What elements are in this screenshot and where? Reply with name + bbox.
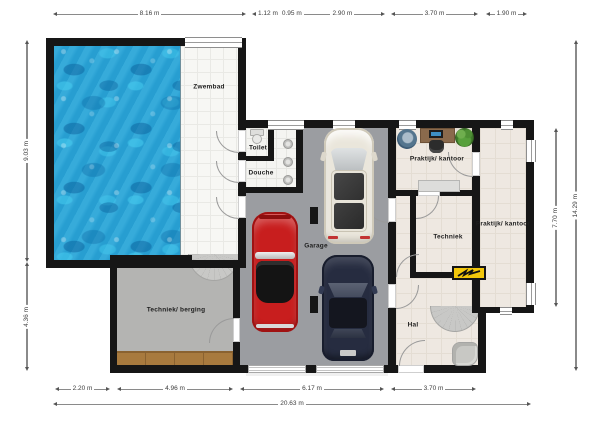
car-rear-window bbox=[330, 329, 366, 338]
shower-head-icon[interactable] bbox=[283, 139, 293, 149]
pillar bbox=[310, 207, 318, 224]
door[interactable] bbox=[388, 284, 396, 308]
window[interactable] bbox=[526, 140, 536, 162]
car-license-plate bbox=[340, 350, 356, 356]
car-roof bbox=[329, 298, 367, 328]
room-label-praktijk-top: Praktijk/ kantoor bbox=[410, 156, 464, 163]
wall bbox=[296, 120, 303, 193]
car-windshield bbox=[328, 283, 368, 297]
shower-head-icon[interactable] bbox=[283, 157, 293, 167]
dimension-right-outer: 14.29 m bbox=[571, 40, 581, 371]
garage-apron bbox=[246, 373, 388, 376]
dimension-bottom-total: 20.63 m bbox=[53, 399, 531, 409]
shower-head-icon[interactable] bbox=[283, 175, 293, 185]
dimension-top-1: 8.16 m bbox=[53, 9, 246, 19]
car-grille bbox=[259, 215, 291, 219]
white-suv-icon[interactable] bbox=[324, 128, 374, 244]
door[interactable] bbox=[238, 196, 246, 218]
window[interactable] bbox=[500, 307, 512, 315]
entrance-door[interactable] bbox=[398, 365, 424, 373]
car-sunroof-glass bbox=[334, 203, 364, 229]
pillar bbox=[310, 296, 318, 313]
window[interactable] bbox=[526, 283, 536, 305]
navy-sedan-icon[interactable] bbox=[322, 255, 374, 361]
car-taillight bbox=[360, 236, 370, 239]
door[interactable] bbox=[238, 160, 246, 182]
dimension-left-2: 4.36 m bbox=[22, 262, 32, 371]
wall bbox=[268, 128, 274, 161]
room-label-berging: Techniek/ berging bbox=[147, 307, 206, 314]
room-praktijk-right[interactable] bbox=[480, 128, 526, 307]
room-label-zwembad: Zwembad bbox=[193, 84, 224, 91]
dimension-right-inner: 7.70 m bbox=[551, 128, 561, 307]
car-bumper bbox=[256, 324, 294, 328]
door[interactable] bbox=[472, 152, 480, 176]
wall bbox=[478, 307, 486, 373]
armchair-icon[interactable] bbox=[452, 342, 478, 366]
room-label-garage: Garage bbox=[304, 243, 328, 250]
window[interactable] bbox=[185, 37, 242, 48]
room-label-techniek: Techniek bbox=[433, 234, 462, 241]
floor-plan: Zwembad Toilet Douche Garage Praktijk/ k… bbox=[0, 0, 600, 424]
room-label-toilet: Toilet bbox=[249, 145, 267, 152]
wall bbox=[238, 38, 246, 268]
red-classic-car-icon[interactable] bbox=[252, 212, 298, 332]
wall bbox=[388, 128, 396, 365]
dimension-top-2: 1.12 m0.95 m2.90 m bbox=[252, 9, 385, 19]
garage-door[interactable] bbox=[248, 365, 306, 373]
electrical-panel-sign-icon[interactable] bbox=[452, 266, 486, 280]
wall bbox=[110, 255, 192, 262]
dimension-bottom-3: 6.17 m bbox=[240, 384, 384, 394]
window[interactable] bbox=[268, 120, 304, 130]
plant-icon[interactable] bbox=[455, 128, 474, 147]
car-windshield bbox=[330, 148, 368, 170]
dimension-left-1: 9.03 m bbox=[22, 40, 32, 262]
dimension-top-3: 3.70 m bbox=[391, 9, 478, 19]
dimension-bottom-4: 3.70 m bbox=[391, 384, 476, 394]
room-label-praktijk-right: Praktijk/ kantoor bbox=[476, 221, 530, 228]
office-chair-icon[interactable] bbox=[429, 140, 444, 153]
room-label-douche: Douche bbox=[248, 170, 273, 177]
wall bbox=[110, 365, 240, 373]
dimension-top-4: 1.90 m bbox=[486, 9, 527, 19]
car-sunroof-glass bbox=[334, 173, 364, 200]
toilet-bowl-icon bbox=[252, 134, 262, 144]
door[interactable] bbox=[233, 318, 240, 342]
wall bbox=[238, 187, 303, 193]
monitor-icon bbox=[429, 130, 443, 138]
car-soft-top bbox=[256, 261, 294, 303]
wall bbox=[110, 255, 117, 372]
door[interactable] bbox=[388, 198, 396, 222]
car-windshield bbox=[255, 252, 295, 259]
garage-door[interactable] bbox=[316, 365, 384, 373]
room-label-hal: Hal bbox=[408, 322, 419, 329]
dimension-bottom-2: 4.96 m bbox=[117, 384, 233, 394]
wall bbox=[46, 38, 54, 268]
sideboard-icon[interactable] bbox=[418, 180, 460, 192]
pool-water[interactable] bbox=[54, 46, 181, 260]
door[interactable] bbox=[238, 130, 246, 152]
car-taillight bbox=[328, 236, 338, 239]
dimension-bottom-1: 2.20 m bbox=[55, 384, 110, 394]
window[interactable] bbox=[501, 120, 513, 130]
